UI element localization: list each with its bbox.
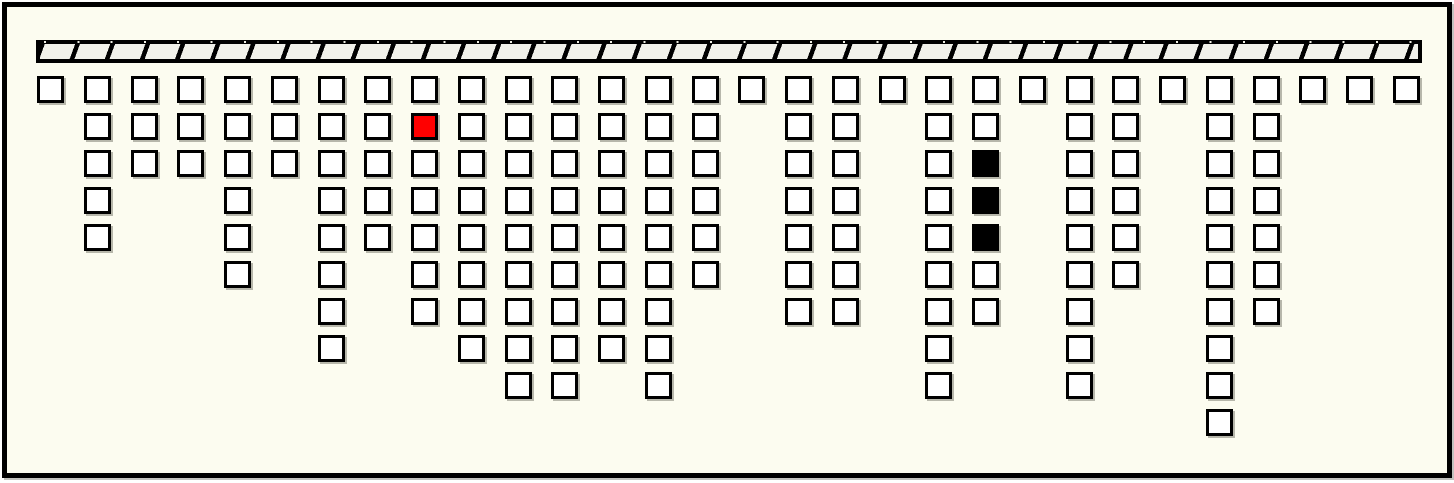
bucket-cell <box>598 335 625 362</box>
bucket-cell <box>1253 224 1280 251</box>
bucket-cell <box>551 224 578 251</box>
bucket-cell <box>1206 409 1233 436</box>
bucket-cell <box>318 76 345 103</box>
bucket-cell <box>785 187 812 214</box>
bucket-cell <box>832 298 859 325</box>
bucket-cell <box>832 224 859 251</box>
bucket-cell <box>411 298 438 325</box>
bucket-cell <box>224 113 251 140</box>
bucket-cell <box>84 76 111 103</box>
bucket-cell <box>84 187 111 214</box>
bucket-cell <box>925 261 952 288</box>
bucket-cell <box>738 76 765 103</box>
bucket-cell <box>785 224 812 251</box>
bucket-cell <box>972 261 999 288</box>
bucket-cell <box>318 224 345 251</box>
bucket-cell <box>925 187 952 214</box>
bucket-cell <box>505 335 532 362</box>
bucket-cell <box>1346 76 1373 103</box>
bucket-cell <box>692 187 719 214</box>
bucket-cell <box>318 298 345 325</box>
bucket-cell <box>598 224 625 251</box>
bucket-cell <box>925 372 952 399</box>
bucket-cell <box>458 76 485 103</box>
bucket-cell <box>1299 76 1326 103</box>
bucket-cell <box>1112 113 1139 140</box>
bucket-cell <box>1066 150 1093 177</box>
bucket-cell <box>692 261 719 288</box>
bucket-cell <box>37 76 64 103</box>
bucket-cell <box>318 150 345 177</box>
bucket-cell <box>224 187 251 214</box>
bucket-cell <box>505 187 532 214</box>
bucket-cell <box>1253 76 1280 103</box>
bucket-cell <box>925 335 952 362</box>
bucket-cell <box>692 150 719 177</box>
bucket-cell <box>1206 298 1233 325</box>
bucket-cell <box>271 150 298 177</box>
bucket-cell <box>1393 76 1420 103</box>
bucket-cell <box>551 335 578 362</box>
bucket-cell <box>1253 113 1280 140</box>
bucket-cell <box>1206 335 1233 362</box>
bucket-cell <box>364 150 391 177</box>
bucket-cell <box>1019 76 1046 103</box>
bucket-cell <box>364 224 391 251</box>
app-window <box>0 0 1454 483</box>
bucket-cell <box>692 224 719 251</box>
bucket-cell <box>505 261 532 288</box>
bucket-cell <box>645 335 672 362</box>
bucket-cell <box>1206 187 1233 214</box>
bucket-cell <box>645 261 672 288</box>
bucket-cell <box>1112 187 1139 214</box>
bucket-cell-black <box>972 150 999 177</box>
bucket-cell <box>645 187 672 214</box>
bucket-cell <box>271 76 298 103</box>
bucket-cell <box>785 261 812 288</box>
bucket-cell <box>224 76 251 103</box>
bucket-cell-red <box>411 113 438 140</box>
bucket-cell <box>832 150 859 177</box>
bucket-cell <box>271 113 298 140</box>
bucket-cell <box>1066 224 1093 251</box>
bucket-cell <box>1066 335 1093 362</box>
diagram-frame <box>2 2 1452 478</box>
bucket-cell <box>785 298 812 325</box>
bucket-cell <box>551 187 578 214</box>
bucket-cell <box>411 150 438 177</box>
bucket-cell <box>131 76 158 103</box>
bucket-cell <box>1206 113 1233 140</box>
bucket-cell <box>458 113 485 140</box>
bucket-cell <box>925 298 952 325</box>
bucket-cell <box>505 298 532 325</box>
bucket-cell <box>925 224 952 251</box>
bucket-cell <box>692 76 719 103</box>
bucket-cell <box>1112 76 1139 103</box>
bucket-cell <box>1253 298 1280 325</box>
bucket-cell <box>364 187 391 214</box>
bucket-cell <box>1253 150 1280 177</box>
bucket-cell <box>458 335 485 362</box>
bucket-cell <box>972 113 999 140</box>
bucket-cell <box>1159 76 1186 103</box>
bucket-cell <box>458 298 485 325</box>
bucket-cell <box>318 113 345 140</box>
bucket-cell <box>785 76 812 103</box>
bucket-cell <box>785 113 812 140</box>
bucket-cell <box>1206 224 1233 251</box>
bucket-cell <box>645 150 672 177</box>
bucket-cell <box>458 150 485 177</box>
bucket-cell <box>925 113 952 140</box>
bucket-cell <box>458 224 485 251</box>
bucket-cell <box>224 224 251 251</box>
bucket-cell-black <box>972 224 999 251</box>
bucket-grid <box>7 7 1447 473</box>
bucket-cell <box>84 113 111 140</box>
bucket-cell <box>131 150 158 177</box>
bucket-cell <box>645 298 672 325</box>
bucket-cell <box>598 298 625 325</box>
bucket-cell <box>224 261 251 288</box>
bucket-cell <box>832 113 859 140</box>
bucket-cell <box>551 76 578 103</box>
bucket-cell <box>1112 261 1139 288</box>
bucket-cell <box>1206 372 1233 399</box>
bucket-cell <box>1112 224 1139 251</box>
bucket-cell <box>1206 261 1233 288</box>
bucket-cell <box>598 187 625 214</box>
bucket-cell <box>832 261 859 288</box>
bucket-cell <box>1253 261 1280 288</box>
bucket-cell <box>832 76 859 103</box>
bucket-cell <box>364 113 391 140</box>
bucket-cell <box>458 261 485 288</box>
bucket-cell <box>551 150 578 177</box>
bucket-cell <box>84 224 111 251</box>
bucket-cell <box>411 224 438 251</box>
bucket-cell <box>458 187 485 214</box>
bucket-cell <box>1066 298 1093 325</box>
bucket-cell <box>411 261 438 288</box>
bucket-cell <box>925 150 952 177</box>
bucket-cell <box>131 113 158 140</box>
bucket-cell <box>1112 150 1139 177</box>
bucket-cell <box>645 113 672 140</box>
bucket-cell <box>318 335 345 362</box>
bucket-cell <box>1066 113 1093 140</box>
bucket-cell <box>411 187 438 214</box>
bucket-cell <box>551 372 578 399</box>
bucket-cell <box>692 113 719 140</box>
bucket-cell <box>832 187 859 214</box>
bucket-cell <box>505 224 532 251</box>
bucket-cell <box>505 150 532 177</box>
bucket-cell <box>1206 150 1233 177</box>
bucket-cell <box>84 150 111 177</box>
bucket-cell <box>598 150 625 177</box>
bucket-cell <box>645 76 672 103</box>
bucket-cell <box>177 76 204 103</box>
bucket-cell <box>551 261 578 288</box>
bucket-cell <box>972 76 999 103</box>
bucket-cell <box>177 150 204 177</box>
bucket-cell <box>598 76 625 103</box>
diagram-canvas <box>7 7 1447 473</box>
bucket-cell <box>505 76 532 103</box>
bucket-cell <box>1066 372 1093 399</box>
bucket-cell <box>177 113 204 140</box>
bucket-cell <box>505 113 532 140</box>
bucket-cell <box>598 261 625 288</box>
bucket-cell <box>505 372 532 399</box>
bucket-cell <box>1253 187 1280 214</box>
bucket-cell <box>318 261 345 288</box>
bucket-cell <box>411 76 438 103</box>
bucket-cell-black <box>972 187 999 214</box>
bucket-cell <box>645 224 672 251</box>
bucket-cell <box>1066 76 1093 103</box>
bucket-cell <box>1066 261 1093 288</box>
bucket-cell <box>1066 187 1093 214</box>
bucket-cell <box>224 150 251 177</box>
bucket-cell <box>972 298 999 325</box>
bucket-cell <box>364 76 391 103</box>
bucket-cell <box>1206 76 1233 103</box>
bucket-cell <box>598 113 625 140</box>
bucket-cell <box>925 76 952 103</box>
bucket-cell <box>645 372 672 399</box>
bucket-cell <box>551 298 578 325</box>
bucket-cell <box>318 187 345 214</box>
bucket-cell <box>551 113 578 140</box>
bucket-cell <box>879 76 906 103</box>
bucket-cell <box>785 150 812 177</box>
